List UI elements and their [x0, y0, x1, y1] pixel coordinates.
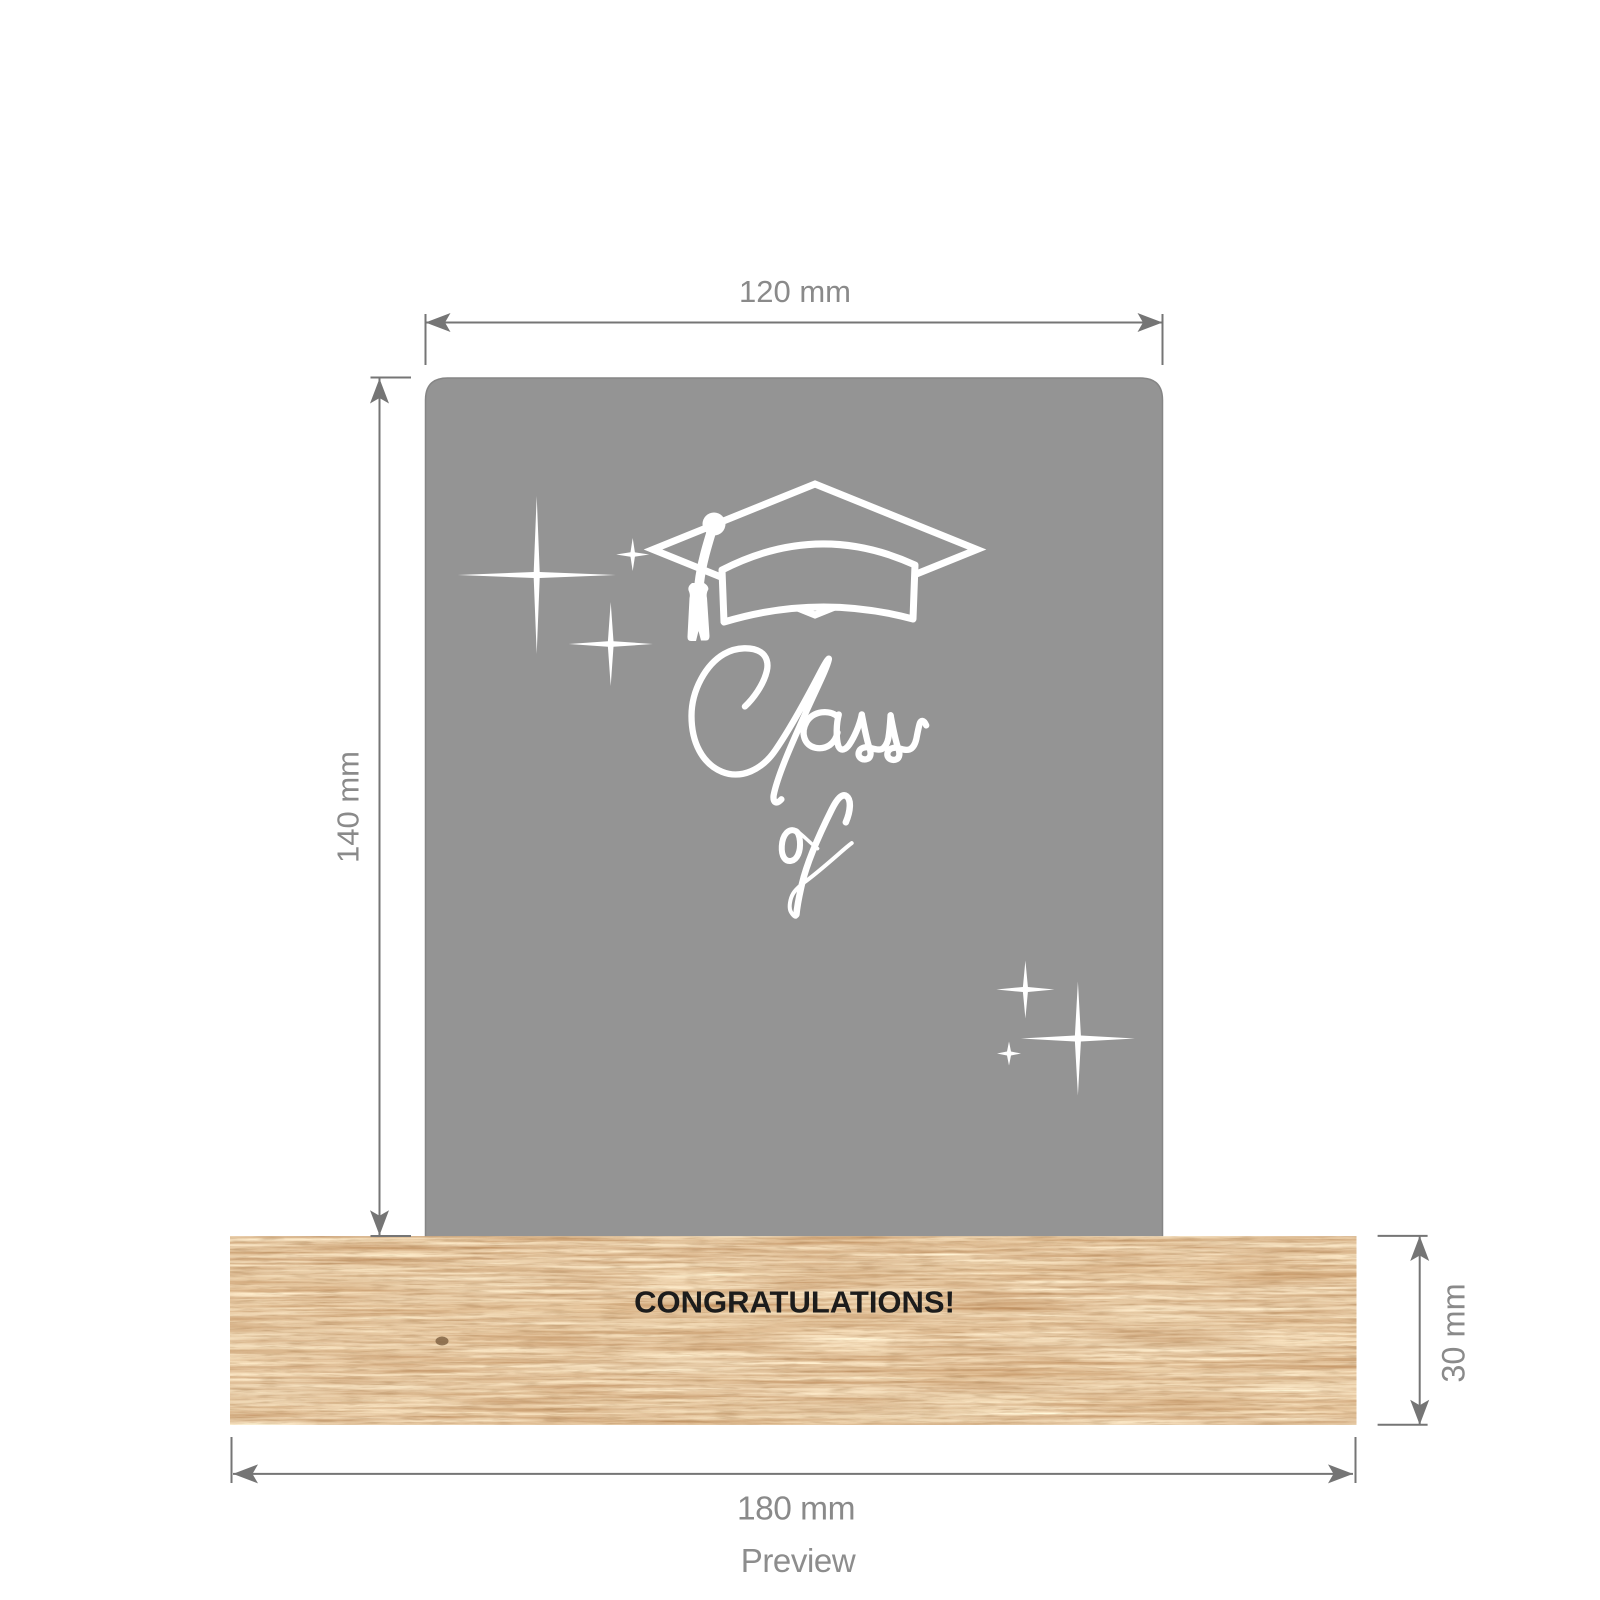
svg-text:180 mm: 180 mm: [737, 1491, 855, 1528]
svg-text:140 mm: 140 mm: [331, 751, 366, 863]
svg-text:120 mm: 120 mm: [739, 274, 851, 309]
svg-text:Preview: Preview: [741, 1542, 856, 1579]
svg-text:30 mm: 30 mm: [1436, 1283, 1472, 1382]
svg-text:CONGRATULATIONS!: CONGRATULATIONS!: [634, 1285, 955, 1320]
